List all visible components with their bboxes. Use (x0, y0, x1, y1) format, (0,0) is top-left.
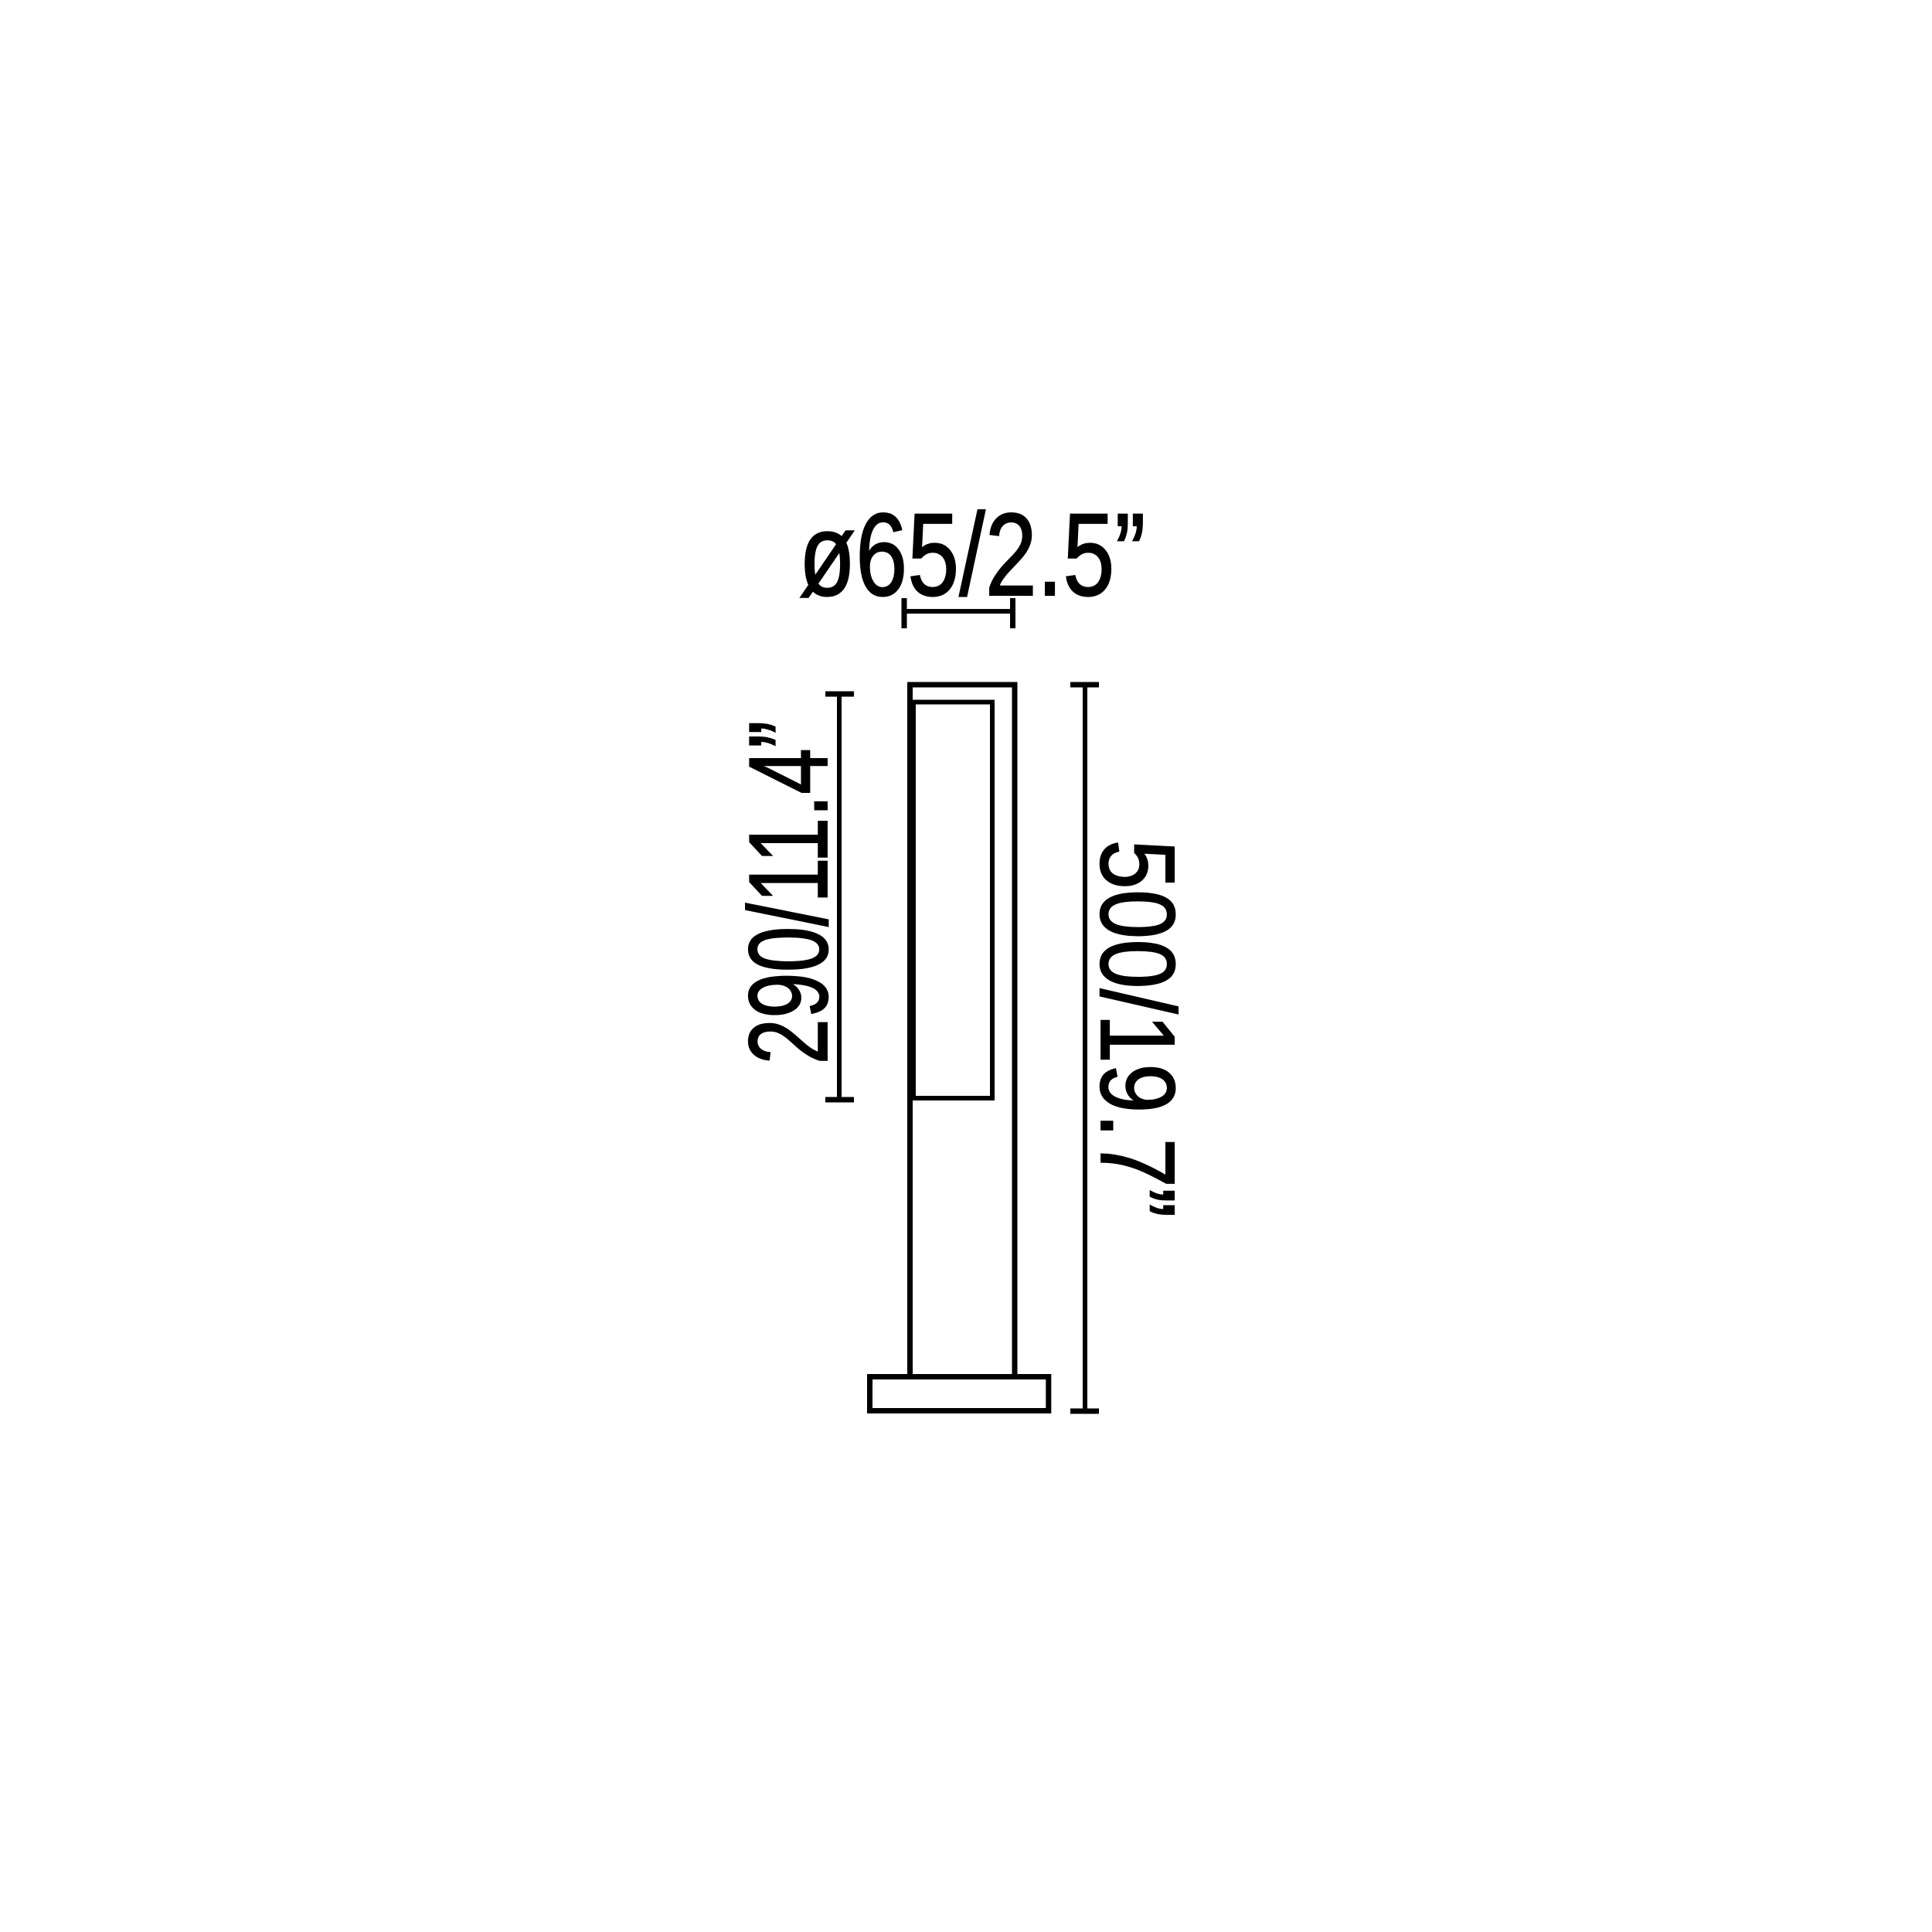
svg-text:500/19.7”: 500/19.7” (1079, 840, 1197, 1218)
svg-text:290/11.4”: 290/11.4” (726, 721, 851, 1065)
svg-text:ø65/2.5”: ø65/2.5” (799, 488, 1146, 620)
